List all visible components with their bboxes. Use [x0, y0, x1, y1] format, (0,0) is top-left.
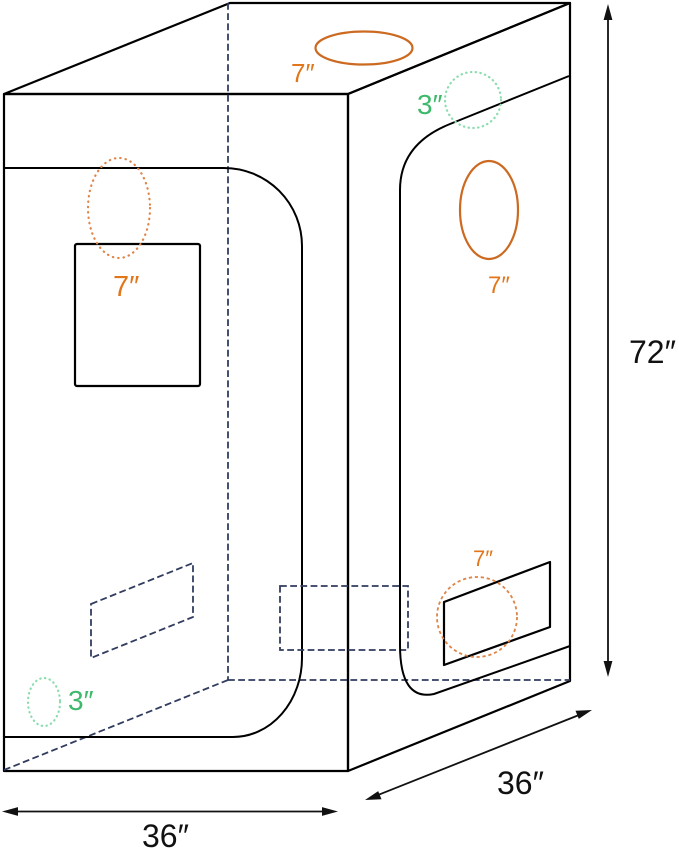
svg-text:7″: 7″ — [473, 546, 493, 571]
svg-text:3″: 3″ — [417, 89, 443, 120]
svg-text:7″: 7″ — [113, 271, 139, 303]
svg-text:7″: 7″ — [488, 272, 510, 299]
svg-text:36″: 36″ — [497, 765, 544, 801]
svg-text:72″: 72″ — [629, 334, 676, 370]
svg-text:36″: 36″ — [142, 818, 189, 851]
svg-text:3″: 3″ — [68, 685, 94, 716]
svg-text:7″: 7″ — [291, 58, 315, 88]
